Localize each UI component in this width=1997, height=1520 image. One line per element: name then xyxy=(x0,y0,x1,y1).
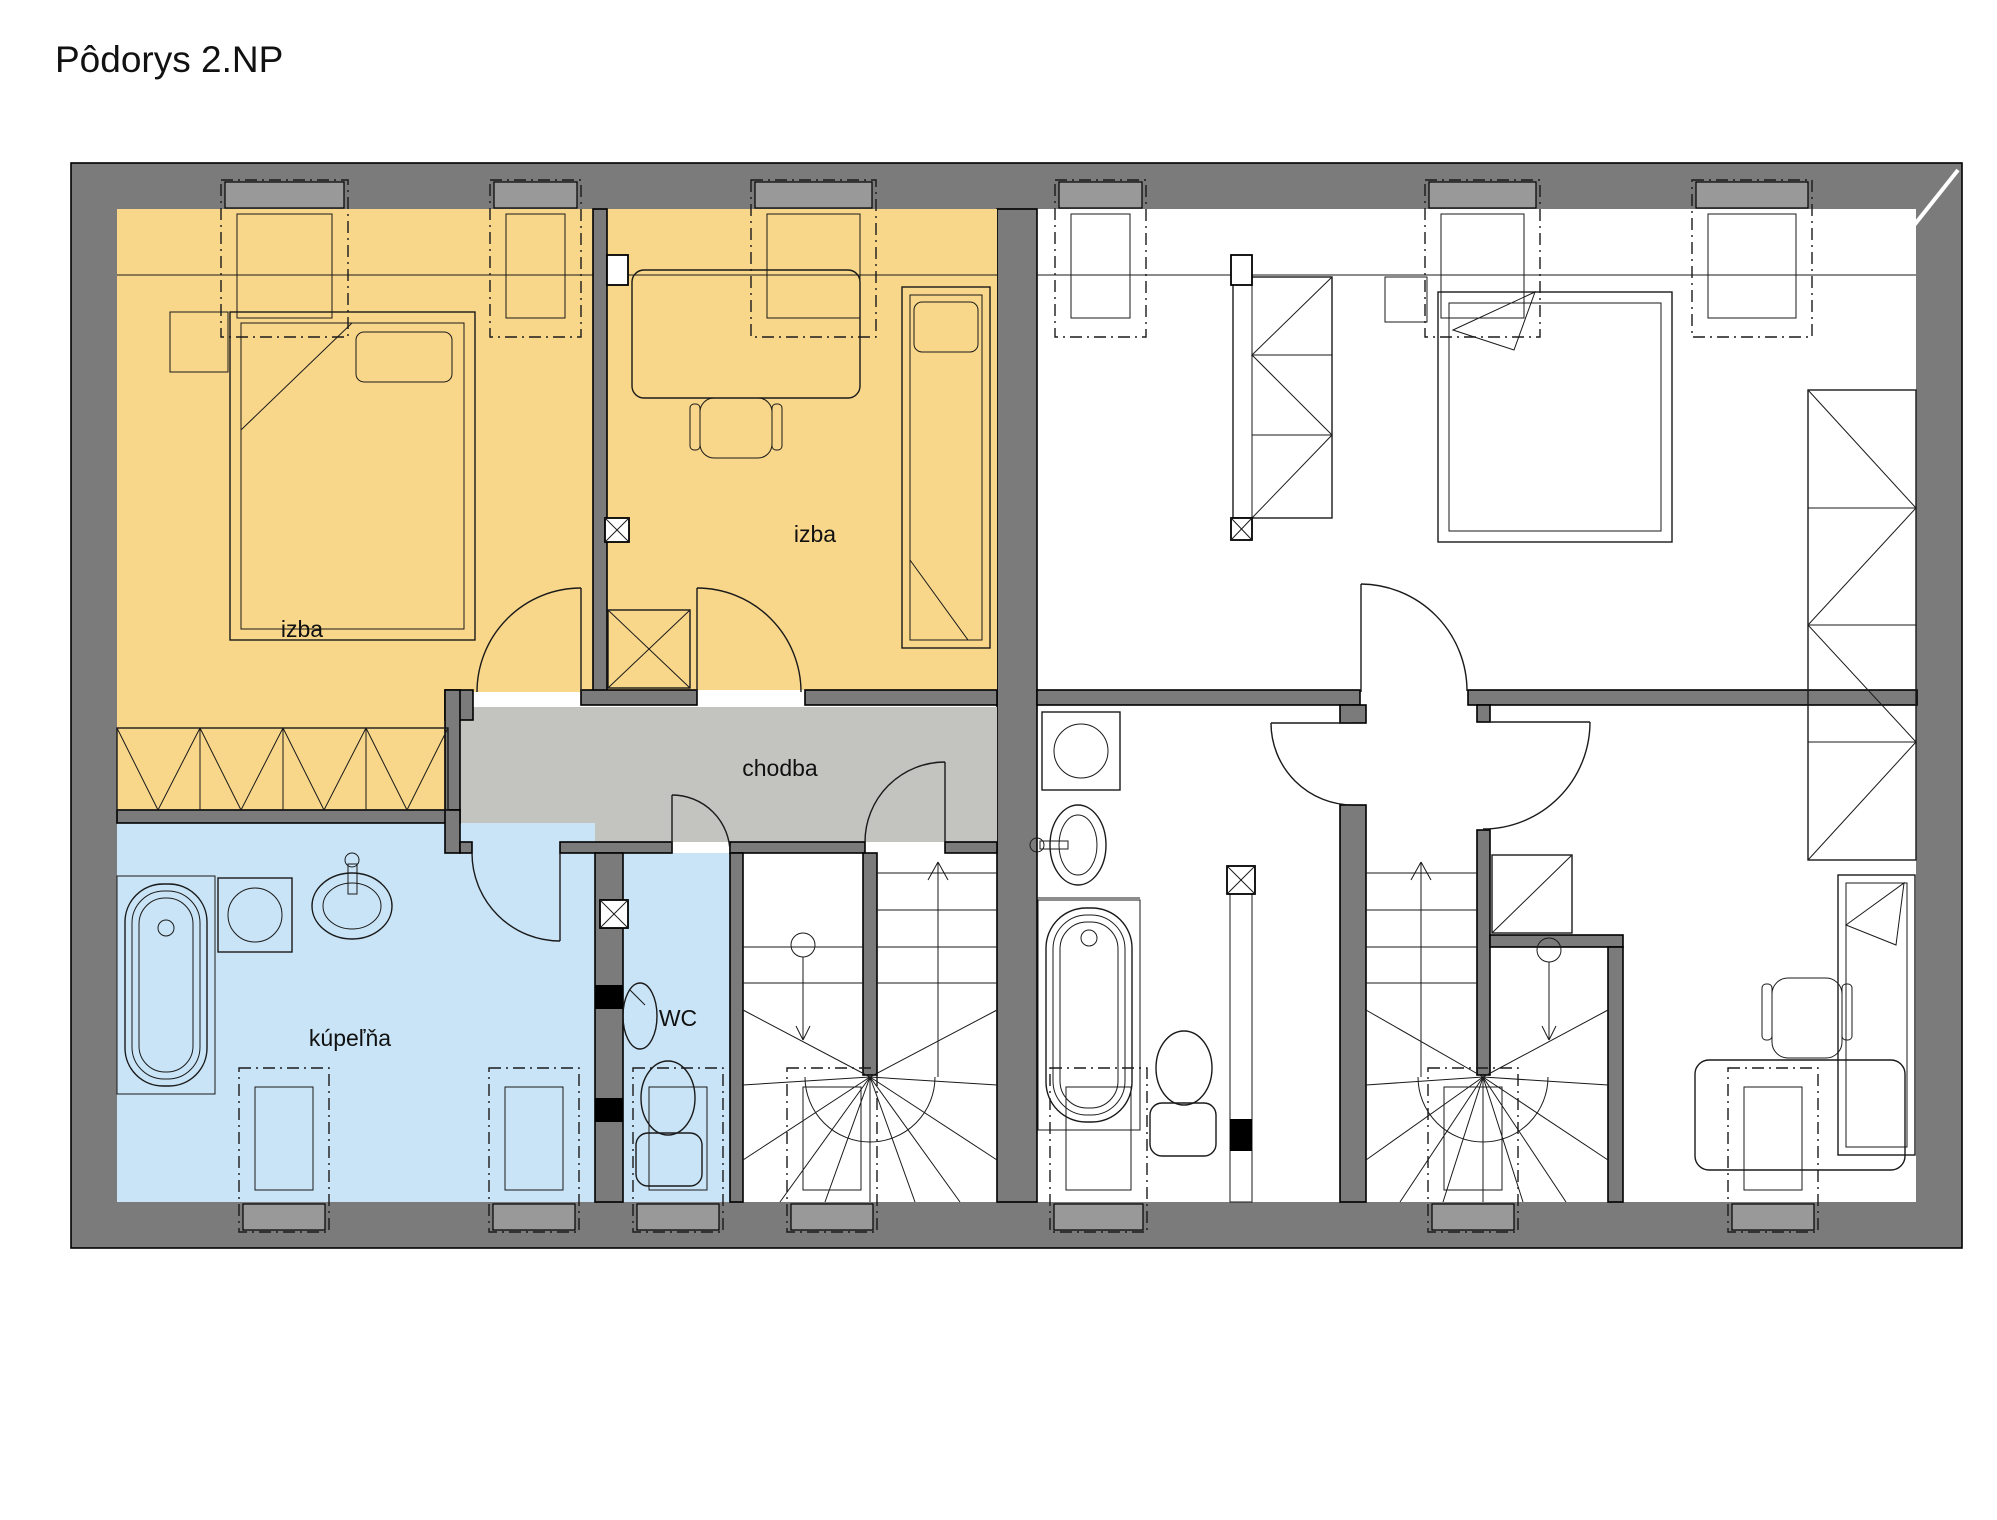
wall-joint xyxy=(445,810,460,853)
room-label-izba-2: izba xyxy=(794,521,836,547)
room-label-chodba: chodba xyxy=(742,755,818,781)
room-chodba-fill xyxy=(460,707,997,842)
shaft-box-wc xyxy=(600,900,628,928)
wall-r-corridor-top-right xyxy=(1468,690,1917,705)
floor-plan-svg: Pôdorys 2.NP xyxy=(0,0,1997,1515)
wall-corridor-bottom-b xyxy=(560,842,672,853)
room-label-wc: WC xyxy=(659,1005,697,1031)
shaft-box-right xyxy=(1231,518,1252,540)
room-label-kupelna: kúpeľňa xyxy=(309,1025,391,1051)
wall-stair-spine-left xyxy=(863,853,877,1075)
floor-plan-page: Pôdorys 2.NP xyxy=(0,0,1997,1515)
wall-corridor-bottom-d xyxy=(945,842,997,853)
wall-r-spine xyxy=(1477,830,1490,1075)
wall-corridor-left xyxy=(445,690,460,810)
wall-r-bath-post xyxy=(1340,705,1366,723)
wall-tick-2 xyxy=(595,1098,623,1122)
wall-corridor-bottom-a xyxy=(460,842,472,853)
wall-izba1-bottom xyxy=(117,810,460,823)
wall-corridor-bottom-c xyxy=(730,842,865,853)
column-stub-right xyxy=(1231,255,1252,285)
wall-r-bath-stairs xyxy=(1340,805,1366,1202)
wall-r-spine-top xyxy=(1477,705,1490,722)
wall-izba-divider xyxy=(593,209,607,692)
room-label-izba-1: izba xyxy=(281,616,323,642)
room-izba-1-fill xyxy=(117,209,593,692)
wall-corridor-top-right xyxy=(805,690,997,705)
room-izba-1-fill-lower xyxy=(117,692,445,810)
page-title: Pôdorys 2.NP xyxy=(55,39,283,80)
room-izba-2-fill xyxy=(607,209,997,690)
party-wall xyxy=(997,209,1037,1202)
wall-tick-1 xyxy=(595,985,623,1009)
wall-r-corridor-top-left xyxy=(1037,690,1360,705)
column-stub-left xyxy=(607,255,628,285)
wall-wc-stairs xyxy=(730,853,743,1202)
room-kupelna-fill xyxy=(117,823,595,1202)
shaft-box-divider xyxy=(605,518,629,542)
wall-r-deskroom-left xyxy=(1608,947,1623,1202)
wall-corridor-top-mid xyxy=(581,690,697,705)
